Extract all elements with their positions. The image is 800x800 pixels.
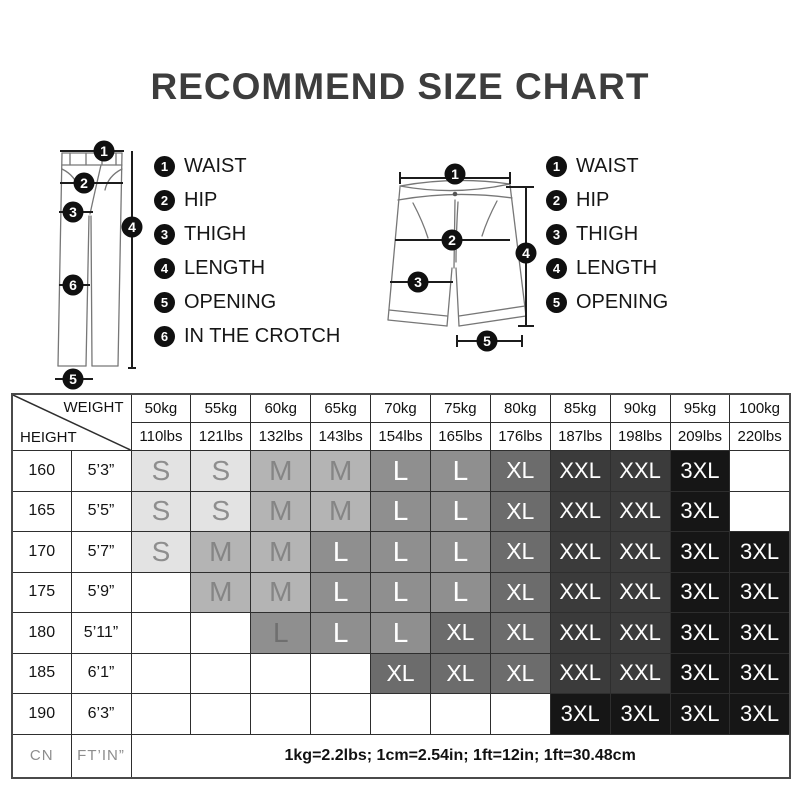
size-cell: L: [311, 572, 371, 613]
size-cell: M: [191, 532, 251, 573]
shorts-legend-item-opening: 5OPENING: [546, 292, 668, 313]
table-row: 1856’1”XLXLXLXXLXXL3XL3XL: [12, 653, 790, 694]
legend-item-label: OPENING: [184, 291, 276, 314]
size-cell: M: [311, 451, 371, 492]
table-row: 1906’3”3XL3XL3XL3XL: [12, 694, 790, 735]
weight-lbs-cell: 154lbs: [371, 423, 431, 451]
size-cell: L: [430, 491, 490, 532]
size-cell: 3XL: [730, 572, 790, 613]
weight-lbs-cell: 132lbs: [251, 423, 311, 451]
weight-kg-cell: 95kg: [670, 394, 730, 423]
size-cell: XXL: [550, 532, 610, 573]
footer-row: CN FT’IN” 1kg=2.2lbs; 1cm=2.54in; 1ft=12…: [12, 734, 790, 778]
height-cm-cell: 160: [12, 451, 71, 492]
size-cell-empty: [311, 694, 371, 735]
size-cell-empty: [371, 694, 431, 735]
weight-lbs-cell: 209lbs: [670, 423, 730, 451]
size-cell: L: [371, 572, 431, 613]
height-ftin-cell: 5’5”: [71, 491, 131, 532]
size-cell: S: [191, 451, 251, 492]
pants-marker-waist: 1: [94, 141, 115, 162]
size-cell: 3XL: [550, 694, 610, 735]
size-cell: L: [311, 613, 371, 654]
size-cell-empty: [730, 491, 790, 532]
pants-marker-length: 4: [122, 217, 143, 238]
height-ftin-cell: 6’1”: [71, 653, 131, 694]
size-cell: S: [191, 491, 251, 532]
shorts-outline: [388, 180, 526, 326]
legend-number-badge: 5: [154, 292, 175, 313]
pants-measure-lines: [55, 151, 136, 379]
legend-item-label: IN THE CROTCH: [184, 325, 340, 348]
size-cell: L: [430, 572, 490, 613]
weight-kg-row: WEIGHT HEIGHT 50kg55kg60kg65kg70kg75kg80…: [12, 394, 790, 423]
size-cell: XXL: [550, 653, 610, 694]
legend-item-label: LENGTH: [184, 257, 265, 280]
size-cell: XXL: [610, 491, 670, 532]
size-cell: M: [251, 451, 311, 492]
size-cell: 3XL: [670, 451, 730, 492]
size-cell: XXL: [550, 613, 610, 654]
size-cell: S: [131, 491, 191, 532]
legend-number-badge: 2: [546, 190, 567, 211]
shorts-legend-item-length: 4LENGTH: [546, 258, 668, 279]
corner-cell: WEIGHT HEIGHT: [12, 394, 131, 451]
legend-number-badge: 6: [154, 326, 175, 347]
page-title: RECOMMEND SIZE CHART: [0, 66, 800, 108]
pants-legend-item-hip: 2HIP: [154, 190, 340, 211]
size-cell-empty: [191, 694, 251, 735]
size-cell: L: [371, 532, 431, 573]
size-cell-empty: [490, 694, 550, 735]
size-cell: 3XL: [670, 572, 730, 613]
weight-lbs-cell: 121lbs: [191, 423, 251, 451]
size-cell: M: [251, 491, 311, 532]
size-cell: XL: [490, 451, 550, 492]
legend-item-label: OPENING: [576, 291, 668, 314]
pants-legend-item-waist: 1WAIST: [154, 156, 340, 177]
pants-legend-item-length: 4LENGTH: [154, 258, 340, 279]
weight-kg-cell: 75kg: [430, 394, 490, 423]
size-cell: XL: [371, 653, 431, 694]
svg-text:3: 3: [69, 204, 77, 220]
pants-legend-item-thigh: 3THIGH: [154, 224, 340, 245]
height-ftin-cell: 5’9”: [71, 572, 131, 613]
legend-number-badge: 2: [154, 190, 175, 211]
size-cell: L: [430, 451, 490, 492]
size-cell-empty: [311, 653, 371, 694]
svg-text:3: 3: [414, 274, 422, 290]
pants-legend: 1WAIST2HIP3THIGH4LENGTH5OPENING6IN THE C…: [154, 156, 340, 360]
svg-text:4: 4: [128, 219, 136, 235]
size-cell: XXL: [610, 572, 670, 613]
size-cell: S: [131, 451, 191, 492]
size-cell: L: [371, 613, 431, 654]
size-cell: XL: [430, 613, 490, 654]
svg-text:1: 1: [451, 166, 459, 182]
ftin-unit-cell: FT’IN”: [71, 734, 131, 778]
weight-kg-cell: 85kg: [550, 394, 610, 423]
legend-number-badge: 1: [546, 156, 567, 177]
pants-diagram: 1 2 3 4 6 5: [48, 136, 148, 392]
legend-number-badge: 1: [154, 156, 175, 177]
table-row: 1705’7”SMMLLLXLXXLXXL3XL3XL: [12, 532, 790, 573]
size-cell: XXL: [610, 653, 670, 694]
height-cm-cell: 165: [12, 491, 71, 532]
size-cell: 3XL: [610, 694, 670, 735]
weight-lbs-cell: 110lbs: [131, 423, 191, 451]
weight-lbs-cell: 220lbs: [730, 423, 790, 451]
size-chart-table: WEIGHT HEIGHT 50kg55kg60kg65kg70kg75kg80…: [11, 393, 791, 779]
size-cell-empty: [131, 653, 191, 694]
weight-lbs-cell: 165lbs: [430, 423, 490, 451]
pants-marker-opening: 5: [63, 369, 84, 390]
height-ftin-cell: 5’11”: [71, 613, 131, 654]
legend-item-label: WAIST: [184, 155, 247, 178]
height-cm-cell: 170: [12, 532, 71, 573]
legend-item-label: THIGH: [576, 223, 638, 246]
page: RECOMMEND SIZE CHART 1: [0, 0, 800, 800]
weight-kg-cell: 60kg: [251, 394, 311, 423]
shorts-marker-thigh: 3: [408, 272, 429, 293]
height-cm-cell: 180: [12, 613, 71, 654]
size-cell: 3XL: [730, 532, 790, 573]
size-cell: 3XL: [730, 653, 790, 694]
size-cell-empty: [191, 653, 251, 694]
weight-kg-cell: 100kg: [730, 394, 790, 423]
table-row: 1655’5”SSMMLLXLXXLXXL3XL: [12, 491, 790, 532]
size-cell: XXL: [610, 613, 670, 654]
size-cell: XXL: [610, 532, 670, 573]
weight-axis-label: WEIGHT: [64, 399, 124, 416]
legend-number-badge: 3: [546, 224, 567, 245]
size-cell: XXL: [550, 572, 610, 613]
size-cell: M: [191, 572, 251, 613]
legend-item-label: HIP: [576, 189, 609, 212]
svg-text:1: 1: [100, 143, 108, 159]
size-cell: XL: [490, 653, 550, 694]
size-cell: L: [251, 613, 311, 654]
weight-kg-cell: 80kg: [490, 394, 550, 423]
legend-number-badge: 3: [154, 224, 175, 245]
shorts-legend-item-thigh: 3THIGH: [546, 224, 668, 245]
weight-kg-cell: 90kg: [610, 394, 670, 423]
shorts-marker-length: 4: [516, 243, 537, 264]
weight-kg-cell: 50kg: [131, 394, 191, 423]
height-unit-cell: CN: [12, 734, 71, 778]
legend-item-label: WAIST: [576, 155, 639, 178]
shorts-marker-opening: 5: [477, 331, 498, 352]
table-row: 1755’9”MMLLLXLXXLXXL3XL3XL: [12, 572, 790, 613]
size-cell: 3XL: [670, 491, 730, 532]
size-cell: 3XL: [670, 613, 730, 654]
shorts-diagram: 1 2 3 4 5: [385, 150, 545, 358]
size-cell: L: [311, 532, 371, 573]
legend-item-label: HIP: [184, 189, 217, 212]
size-cell: XL: [490, 572, 550, 613]
size-cell: XL: [490, 613, 550, 654]
size-cell: XXL: [610, 451, 670, 492]
size-cell: 3XL: [670, 653, 730, 694]
size-cell-empty: [131, 572, 191, 613]
legend-number-badge: 4: [154, 258, 175, 279]
size-cell: L: [371, 451, 431, 492]
height-cm-cell: 185: [12, 653, 71, 694]
size-cell: 3XL: [670, 694, 730, 735]
shorts-marker-hip: 2: [442, 230, 463, 251]
shorts-legend: 1WAIST2HIP3THIGH4LENGTH5OPENING: [546, 156, 668, 326]
weight-lbs-cell: 176lbs: [490, 423, 550, 451]
size-cell: 3XL: [670, 532, 730, 573]
height-axis-label: HEIGHT: [20, 429, 77, 446]
pants-marker-hip: 2: [74, 173, 95, 194]
legend-number-badge: 5: [546, 292, 567, 313]
size-cell: XL: [490, 491, 550, 532]
table-row: 1605’3”SSMMLLXLXXLXXL3XL: [12, 451, 790, 492]
size-cell: XXL: [550, 491, 610, 532]
table-row: 1805’11”LLLXLXLXXLXXL3XL3XL: [12, 613, 790, 654]
svg-text:6: 6: [69, 277, 77, 293]
height-cm-cell: 175: [12, 572, 71, 613]
size-cell-empty: [251, 694, 311, 735]
shorts-marker-waist: 1: [445, 164, 466, 185]
size-cell: XL: [490, 532, 550, 573]
pants-marker-thigh: 3: [63, 202, 84, 223]
size-cell: S: [131, 532, 191, 573]
weight-kg-cell: 65kg: [311, 394, 371, 423]
legend-item-label: THIGH: [184, 223, 246, 246]
svg-text:5: 5: [483, 333, 491, 349]
size-cell: M: [251, 532, 311, 573]
pants-legend-item-opening: 5OPENING: [154, 292, 340, 313]
size-cell-empty: [131, 694, 191, 735]
svg-text:2: 2: [80, 175, 88, 191]
size-cell-empty: [191, 613, 251, 654]
size-cell: M: [251, 572, 311, 613]
height-ftin-cell: 5’3”: [71, 451, 131, 492]
size-cell-empty: [430, 694, 490, 735]
weight-lbs-cell: 187lbs: [550, 423, 610, 451]
size-cell-empty: [131, 613, 191, 654]
weight-lbs-cell: 198lbs: [610, 423, 670, 451]
size-cell: M: [311, 491, 371, 532]
height-ftin-cell: 5’7”: [71, 532, 131, 573]
shorts-legend-item-hip: 2HIP: [546, 190, 668, 211]
size-cell-empty: [251, 653, 311, 694]
svg-text:2: 2: [448, 232, 456, 248]
size-cell: 3XL: [730, 613, 790, 654]
size-cell-empty: [730, 451, 790, 492]
size-cell: 3XL: [730, 694, 790, 735]
weight-kg-cell: 70kg: [371, 394, 431, 423]
shorts-legend-item-waist: 1WAIST: [546, 156, 668, 177]
pants-marker-crotch: 6: [63, 275, 84, 296]
height-ftin-cell: 6’3”: [71, 694, 131, 735]
size-cell: L: [430, 532, 490, 573]
weight-lbs-cell: 143lbs: [311, 423, 371, 451]
size-cell: XXL: [550, 451, 610, 492]
size-cell: XL: [430, 653, 490, 694]
legend-item-label: LENGTH: [576, 257, 657, 280]
pants-legend-item-in-the-crotch: 6IN THE CROTCH: [154, 326, 340, 347]
conversion-note: 1kg=2.2lbs; 1cm=2.54in; 1ft=12in; 1ft=30…: [131, 734, 790, 778]
size-cell: L: [371, 491, 431, 532]
svg-text:5: 5: [69, 371, 77, 387]
weight-kg-cell: 55kg: [191, 394, 251, 423]
height-cm-cell: 190: [12, 694, 71, 735]
legend-number-badge: 4: [546, 258, 567, 279]
svg-text:4: 4: [522, 245, 530, 261]
